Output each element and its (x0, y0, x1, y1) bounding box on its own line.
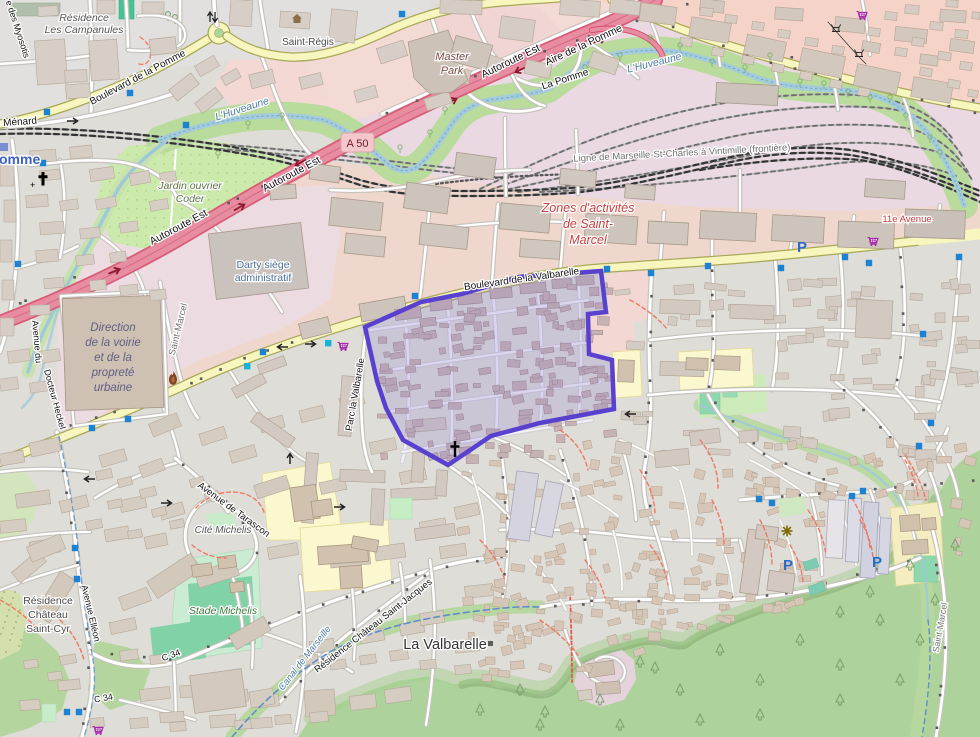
svg-text:Darty siège: Darty siège (236, 259, 289, 271)
svg-text:Jardin ouvrier: Jardin ouvrier (157, 180, 222, 192)
svg-text:Stade Michelis: Stade Michelis (189, 605, 258, 617)
svg-text:Cité Michelis: Cité Michelis (195, 525, 252, 536)
svg-text:11e Avenue: 11e Avenue (882, 214, 931, 225)
svg-text:Résidence: Résidence (59, 12, 109, 24)
svg-text:omme: omme (0, 151, 40, 167)
svg-text:Park: Park (441, 65, 464, 77)
svg-text:de Saint-: de Saint- (563, 217, 613, 231)
svg-text:Saint-Cyr: Saint-Cyr (26, 623, 70, 635)
svg-text:Résidence: Résidence (23, 595, 73, 607)
svg-text:Master: Master (435, 51, 470, 63)
svg-text:La Valbarelle: La Valbarelle (403, 637, 487, 653)
svg-text:urbaine: urbaine (94, 382, 132, 394)
svg-text:A 50: A 50 (346, 138, 368, 150)
svg-text:Les Campanules: Les Campanules (45, 24, 125, 36)
svg-text:P: P (797, 239, 807, 256)
svg-text:+: + (30, 180, 35, 190)
svg-text:et de la: et de la (94, 352, 132, 364)
svg-text:P: P (872, 554, 882, 571)
svg-text:Coder: Coder (176, 193, 205, 205)
svg-text:Direction: Direction (90, 322, 135, 334)
svg-text:Saint-Régis: Saint-Régis (282, 37, 334, 48)
svg-text:P: P (783, 557, 793, 574)
svg-text:Marcel: Marcel (569, 233, 608, 247)
svg-text:de la voirie: de la voirie (85, 337, 141, 349)
svg-text:Château: Château (28, 609, 68, 621)
svg-text:propreté: propreté (91, 367, 135, 379)
svg-text:Zones d'activités: Zones d'activités (541, 201, 635, 215)
svg-text:administratif: administratif (235, 272, 292, 284)
